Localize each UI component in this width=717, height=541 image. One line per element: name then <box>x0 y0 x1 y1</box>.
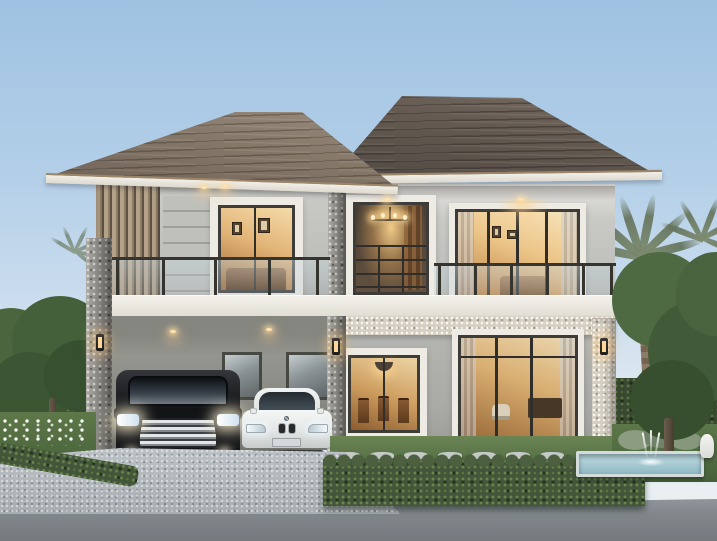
door-mullion <box>495 338 498 437</box>
window-mullion <box>356 259 426 261</box>
sheer-curtain <box>560 338 575 437</box>
white-garden-statue <box>700 434 714 458</box>
white-flower-bed <box>2 418 90 446</box>
dining-chair <box>358 398 369 423</box>
balcony-fascia-band <box>90 295 615 316</box>
sedan-windshield <box>259 392 315 412</box>
window-mullion <box>402 245 404 292</box>
wall-sconce <box>600 338 608 355</box>
sedan-headlight <box>246 424 266 433</box>
sedan-headlight <box>308 424 328 433</box>
eave-downlight <box>201 186 207 189</box>
downlight-glow <box>495 200 551 234</box>
minivan-grille <box>138 418 218 448</box>
sedan-license-plate <box>272 438 301 447</box>
sedan-badge <box>284 416 289 421</box>
chandelier-bulb <box>371 215 375 220</box>
window-mullion <box>356 286 426 288</box>
carport-ceiling-light <box>170 330 176 333</box>
fountain-splash <box>638 458 664 466</box>
picture-frame <box>232 222 242 235</box>
minivan-headlight <box>217 414 239 426</box>
carport-ceiling-light <box>266 328 272 331</box>
black-minivan <box>116 366 240 458</box>
window-mullion <box>378 245 380 292</box>
balcony-railing-left <box>110 257 330 296</box>
sheer-curtain <box>461 338 476 437</box>
architectural-render <box>0 0 717 541</box>
sedan-kidney-grille <box>288 423 296 434</box>
minivan-headlight <box>117 414 139 426</box>
minivan-windshield <box>128 376 228 406</box>
door-transom <box>461 356 575 358</box>
picture-frame <box>258 218 270 233</box>
eave-downlight <box>222 185 228 188</box>
tv-console <box>528 398 562 418</box>
dining-chair <box>398 398 409 423</box>
sedan-mirror <box>317 408 324 414</box>
window-mullion <box>383 358 385 430</box>
window-mullion <box>356 273 426 275</box>
window-mullion <box>356 245 426 247</box>
eave-downlight <box>384 198 390 201</box>
chandelier-bulb <box>403 215 407 220</box>
sedan-body <box>242 410 332 448</box>
fountain-jet <box>650 430 652 455</box>
sedan-mirror <box>250 408 257 414</box>
chandelier-arms <box>372 219 408 221</box>
wall-sconce <box>96 334 104 351</box>
door-mullion <box>530 338 533 437</box>
sedan-kidney-grille <box>278 423 286 434</box>
chandelier-bulb <box>393 213 397 218</box>
chandelier-bulb <box>381 213 385 218</box>
living-doors-glass <box>461 338 575 437</box>
stone-column-center-upper <box>328 188 346 296</box>
eave-downlight <box>518 198 524 201</box>
white-sedan <box>242 388 332 456</box>
wall-sconce <box>332 338 340 355</box>
